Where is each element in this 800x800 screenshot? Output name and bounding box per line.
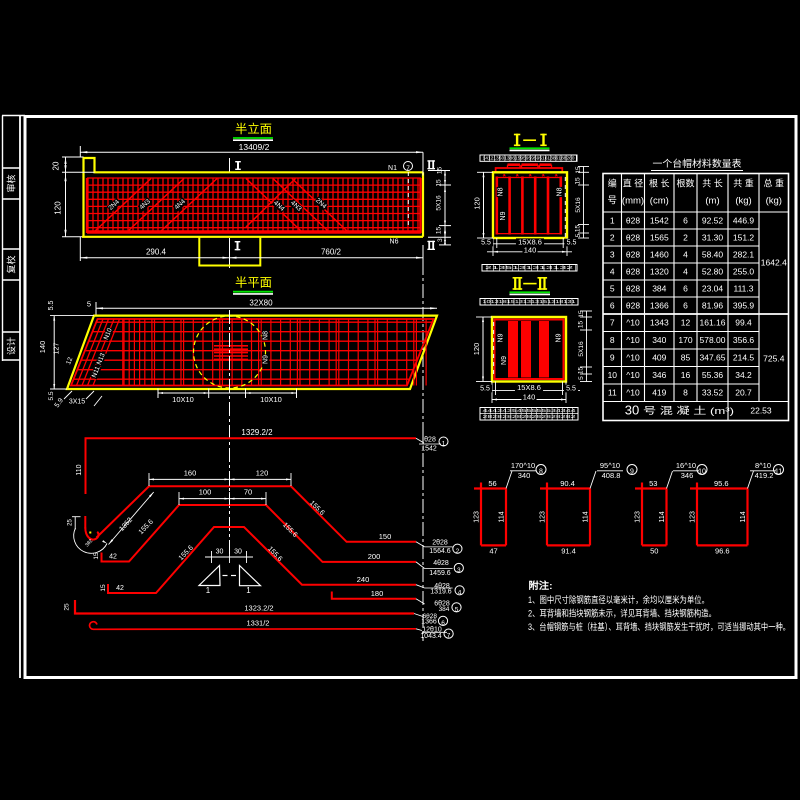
svg-text:5: 5 — [575, 233, 582, 237]
svg-text:7: 7 — [610, 318, 615, 328]
svg-text:半立面: 半立面 — [235, 121, 272, 136]
svg-text:1343: 1343 — [650, 318, 669, 328]
svg-text:根 长: 根 长 — [649, 177, 670, 188]
svg-text:审核: 审核 — [5, 174, 16, 192]
svg-text:150: 150 — [379, 532, 392, 541]
svg-text:1323.2/2: 1323.2/2 — [244, 603, 273, 612]
svg-text:92.52: 92.52 — [702, 215, 724, 225]
svg-text:1319.6: 1319.6 — [430, 588, 452, 595]
svg-text:1043.4: 1043.4 — [420, 633, 442, 640]
svg-text:3: 3 — [610, 249, 615, 259]
svg-text:114: 114 — [659, 511, 666, 522]
svg-text:15: 15 — [575, 177, 582, 185]
svg-text:1: 1 — [206, 586, 211, 595]
svg-text:一个台帽材料数量表: 一个台帽材料数量表 — [653, 158, 743, 170]
svg-text:1542: 1542 — [650, 215, 669, 225]
svg-text:140: 140 — [524, 245, 537, 254]
svg-text:4443435455555534344: 4443435455555534344 — [483, 408, 577, 413]
svg-text:160: 160 — [184, 468, 197, 477]
svg-text:123: 123 — [689, 511, 696, 523]
svg-text:200: 200 — [368, 552, 381, 561]
svg-text:直 径: 直 径 — [623, 177, 644, 188]
svg-text:1564.6: 1564.6 — [429, 548, 451, 555]
svg-text:15: 15 — [578, 321, 585, 329]
svg-text:6: 6 — [683, 215, 688, 225]
svg-text:附注:: 附注: — [529, 580, 553, 592]
svg-text:58.40: 58.40 — [702, 249, 724, 259]
svg-text:θ28: θ28 — [626, 215, 640, 225]
svg-text:140: 140 — [38, 341, 47, 354]
svg-text:31.30: 31.30 — [702, 232, 724, 242]
svg-text:151.2: 151.2 — [733, 232, 755, 242]
svg-text:11: 11 — [608, 388, 617, 398]
svg-text:N9: N9 — [497, 333, 504, 342]
svg-text:8: 8 — [683, 388, 688, 398]
svg-text:10: 10 — [698, 469, 706, 476]
svg-text:290.4: 290.4 — [146, 248, 167, 257]
svg-text:(m): (m) — [705, 196, 719, 207]
svg-text:55.36: 55.36 — [702, 370, 724, 380]
svg-text:10X10: 10X10 — [172, 395, 194, 404]
svg-text:123: 123 — [473, 511, 480, 523]
svg-text:1366: 1366 — [650, 300, 669, 310]
svg-text:1: 1 — [442, 441, 446, 448]
svg-text:2828282828282828282: 2828282828282828282 — [483, 414, 577, 419]
svg-text:半平面: 半平面 — [235, 276, 272, 290]
svg-text:总 重: 总 重 — [764, 177, 785, 188]
svg-text:127: 127 — [53, 343, 60, 355]
svg-text:5: 5 — [455, 606, 459, 613]
svg-text:96.6: 96.6 — [715, 546, 730, 555]
svg-text:设计: 设计 — [5, 337, 16, 355]
svg-text:1565: 1565 — [650, 232, 669, 242]
svg-text:578.00: 578.00 — [700, 335, 726, 345]
svg-text:^10: ^10 — [626, 335, 640, 345]
svg-text:N8: N8 — [262, 331, 269, 340]
svg-text:8: 8 — [610, 335, 615, 345]
svg-text:53: 53 — [649, 479, 657, 488]
svg-text:13409/2: 13409/2 — [239, 142, 270, 152]
svg-text:446.9: 446.9 — [733, 215, 755, 225]
svg-text:16: 16 — [681, 370, 691, 380]
svg-text:47: 47 — [489, 546, 497, 555]
svg-text:5X16: 5X16 — [575, 197, 582, 213]
svg-text:56: 56 — [488, 479, 496, 488]
svg-text:2135131313132: 2135131313132 — [485, 265, 574, 271]
svg-text:99.4: 99.4 — [735, 318, 752, 328]
svg-text:25: 25 — [64, 603, 71, 611]
svg-text:409: 409 — [652, 353, 666, 363]
svg-text:N9: N9 — [501, 356, 508, 365]
svg-text:95^10: 95^10 — [600, 461, 620, 470]
svg-text:33.52: 33.52 — [702, 388, 724, 398]
svg-text:340: 340 — [652, 335, 666, 345]
svg-text:11: 11 — [775, 469, 782, 476]
svg-text:180: 180 — [371, 589, 384, 598]
svg-text:2: 2 — [456, 548, 460, 555]
svg-text:408.8: 408.8 — [602, 471, 621, 480]
svg-text:16^10: 16^10 — [676, 461, 696, 470]
svg-text:50: 50 — [650, 546, 658, 555]
svg-text:^10: ^10 — [626, 388, 640, 398]
svg-text:110: 110 — [76, 464, 83, 475]
svg-text:32X80: 32X80 — [249, 299, 273, 308]
svg-text:6: 6 — [683, 300, 688, 310]
svg-text:5.5: 5.5 — [567, 239, 577, 246]
svg-text:7: 7 — [447, 633, 451, 640]
svg-text:1331/2: 1331/2 — [247, 618, 270, 627]
svg-text:1、图中尺寸除钢筋直径以毫米计，余均以厘米为单位。: 1、图中尺寸除钢筋直径以毫米计，余均以厘米为单位。 — [528, 594, 709, 605]
svg-text:5.5: 5.5 — [566, 385, 576, 392]
svg-text:22.53: 22.53 — [750, 405, 772, 415]
svg-text:θ28: θ28 — [626, 232, 640, 242]
svg-text:θ28: θ28 — [626, 266, 640, 276]
svg-text:2: 2 — [683, 232, 688, 242]
svg-text:141213501386159595959516138618: 1412135013861595959595161386188260 — [483, 156, 575, 161]
svg-text:6: 6 — [441, 620, 445, 627]
svg-text:8: 8 — [539, 469, 543, 476]
svg-text:15: 15 — [575, 166, 582, 174]
svg-text:161.16: 161.16 — [700, 318, 726, 328]
svg-text:347.65: 347.65 — [700, 353, 726, 363]
svg-text:4: 4 — [683, 249, 688, 259]
svg-text:34.2: 34.2 — [735, 370, 752, 380]
svg-text:120: 120 — [54, 201, 63, 215]
svg-text:255.0: 255.0 — [733, 266, 755, 276]
svg-text:114: 114 — [498, 511, 505, 522]
svg-text:114: 114 — [582, 511, 589, 522]
svg-text:95.6: 95.6 — [714, 479, 729, 488]
svg-text:(mm): (mm) — [622, 196, 644, 207]
svg-text:1: 1 — [246, 586, 251, 595]
svg-text:3: 3 — [437, 238, 444, 242]
svg-text:1329.2/2: 1329.2/2 — [241, 428, 273, 437]
svg-text:15: 15 — [575, 225, 582, 233]
svg-text:111.3: 111.3 — [733, 283, 753, 293]
svg-text:N9: N9 — [555, 333, 562, 342]
svg-text:(kg): (kg) — [735, 196, 751, 207]
svg-text:114: 114 — [740, 511, 747, 522]
svg-text:90.4: 90.4 — [560, 479, 575, 488]
svg-text:θ28: θ28 — [626, 300, 640, 310]
svg-text:240: 240 — [357, 575, 370, 584]
svg-text:15: 15 — [578, 367, 585, 375]
svg-text:42: 42 — [109, 553, 117, 560]
svg-text:3X15: 3X15 — [69, 398, 85, 405]
svg-text:5.5: 5.5 — [481, 239, 491, 246]
svg-text:85: 85 — [681, 353, 691, 363]
svg-text:123: 123 — [539, 511, 546, 523]
svg-text:170: 170 — [678, 335, 692, 345]
svg-text:15: 15 — [436, 179, 443, 187]
svg-text:^10: ^10 — [626, 370, 640, 380]
svg-text:3、台帽钢筋与桩（柱基）、耳背墙、挡块钢筋发生干扰时，可适当: 3、台帽钢筋与桩（柱基）、耳背墙、挡块钢筋发生干扰时，可适当挪动其中一种。 — [528, 621, 790, 632]
svg-text:3: 3 — [457, 567, 461, 574]
svg-text:15: 15 — [100, 584, 107, 592]
svg-text:81.96: 81.96 — [702, 300, 724, 310]
svg-text:1320: 1320 — [650, 266, 669, 276]
svg-text:725.4: 725.4 — [763, 353, 785, 363]
svg-text:1: 1 — [610, 215, 615, 225]
svg-text:N8: N8 — [556, 187, 563, 196]
svg-text:1366: 1366 — [421, 619, 437, 626]
svg-text:30: 30 — [234, 548, 242, 555]
svg-text:9: 9 — [630, 469, 634, 476]
svg-text:23.04: 23.04 — [702, 283, 724, 293]
svg-text:12: 12 — [681, 318, 691, 328]
svg-text:15: 15 — [578, 310, 585, 318]
svg-text:123: 123 — [634, 511, 641, 523]
svg-text:10: 10 — [608, 370, 618, 380]
svg-text:θ28: θ28 — [626, 249, 640, 259]
svg-text:号: 号 — [608, 196, 618, 207]
svg-text:15: 15 — [437, 167, 444, 175]
svg-text:复校: 复校 — [5, 255, 16, 273]
svg-text:4: 4 — [610, 266, 615, 276]
svg-text:140: 140 — [523, 392, 536, 401]
svg-text:θ28: θ28 — [424, 436, 436, 443]
svg-text:1460: 1460 — [650, 249, 669, 259]
svg-text:5.5: 5.5 — [48, 301, 55, 311]
svg-text:10131815131313151318131: 10131815131313151318131 — [483, 299, 576, 305]
svg-text:^10: ^10 — [626, 318, 640, 328]
svg-text:340: 340 — [518, 471, 531, 480]
svg-text:356.6: 356.6 — [733, 335, 755, 345]
svg-text:5.5: 5.5 — [48, 391, 55, 400]
svg-text:共 长: 共 长 — [702, 177, 723, 188]
svg-text:419.2: 419.2 — [755, 471, 774, 480]
svg-text:N8: N8 — [497, 187, 504, 196]
svg-text:号 混 凝 土 (m³): 号 混 凝 土 (m³) — [643, 405, 734, 417]
svg-text:9: 9 — [610, 353, 615, 363]
svg-text:120: 120 — [472, 197, 481, 210]
svg-text:4: 4 — [683, 266, 688, 276]
svg-text:52.80: 52.80 — [702, 266, 724, 276]
svg-text:760/2: 760/2 — [321, 248, 342, 257]
svg-text:5X16: 5X16 — [436, 195, 443, 211]
svg-text:7: 7 — [406, 165, 410, 172]
svg-text:6: 6 — [683, 283, 688, 293]
svg-text:2、耳背墙和挡块钢筋未示，详见耳背墙、挡块钢筋构造。: 2、耳背墙和挡块钢筋未示，详见耳背墙、挡块钢筋构造。 — [528, 607, 716, 618]
svg-text:30: 30 — [216, 548, 224, 555]
svg-text:8^10: 8^10 — [755, 461, 771, 470]
svg-text:θ28: θ28 — [626, 283, 640, 293]
svg-text:根数: 根数 — [676, 177, 694, 188]
svg-text:6: 6 — [610, 300, 615, 310]
svg-text:120: 120 — [472, 343, 481, 356]
svg-text:5X16: 5X16 — [578, 341, 585, 357]
svg-text:346: 346 — [681, 471, 694, 480]
svg-text:2: 2 — [610, 232, 615, 242]
svg-text:编: 编 — [608, 177, 617, 188]
svg-text:共 重: 共 重 — [733, 177, 754, 188]
svg-text:346: 346 — [652, 370, 666, 380]
svg-text:N9: N9 — [262, 355, 269, 364]
svg-text:4: 4 — [458, 589, 462, 596]
svg-text:^10: ^10 — [626, 353, 640, 363]
svg-text:100: 100 — [199, 488, 212, 497]
svg-text:(kg): (kg) — [766, 196, 782, 207]
svg-text:15X8.6: 15X8.6 — [517, 383, 541, 392]
svg-text:25: 25 — [68, 519, 74, 526]
svg-text:91.4: 91.4 — [561, 546, 576, 555]
svg-text:N9: N9 — [500, 211, 507, 220]
svg-text:N6: N6 — [390, 238, 399, 245]
svg-text:2θ28: 2θ28 — [432, 539, 448, 546]
svg-text:20.7: 20.7 — [735, 388, 752, 398]
svg-text:214.5: 214.5 — [733, 353, 755, 363]
svg-text:1642.4: 1642.4 — [761, 257, 787, 267]
svg-text:5: 5 — [610, 283, 615, 293]
svg-text:170^10: 170^10 — [511, 461, 535, 470]
svg-text:4θ28: 4θ28 — [433, 560, 449, 567]
svg-text:15: 15 — [93, 552, 100, 560]
svg-text:15: 15 — [436, 227, 443, 235]
svg-text:10X10: 10X10 — [260, 395, 282, 404]
svg-text:282.1: 282.1 — [733, 249, 755, 259]
svg-text:(cm): (cm) — [650, 196, 669, 207]
svg-text:419: 419 — [652, 388, 666, 398]
svg-text:N1: N1 — [388, 165, 397, 172]
svg-text:30: 30 — [625, 402, 639, 417]
svg-text:384: 384 — [652, 283, 666, 293]
svg-text:42: 42 — [116, 585, 124, 592]
svg-text:384: 384 — [439, 606, 450, 613]
svg-text:1542: 1542 — [421, 446, 437, 453]
svg-text:20: 20 — [52, 161, 61, 170]
svg-text:70: 70 — [244, 488, 252, 497]
svg-text:395.9: 395.9 — [733, 300, 755, 310]
svg-text:5: 5 — [87, 299, 91, 308]
svg-text:5: 5 — [578, 376, 585, 380]
svg-text:120: 120 — [256, 468, 269, 477]
svg-text:1459.6: 1459.6 — [429, 570, 451, 577]
svg-text:5.5: 5.5 — [480, 385, 490, 392]
